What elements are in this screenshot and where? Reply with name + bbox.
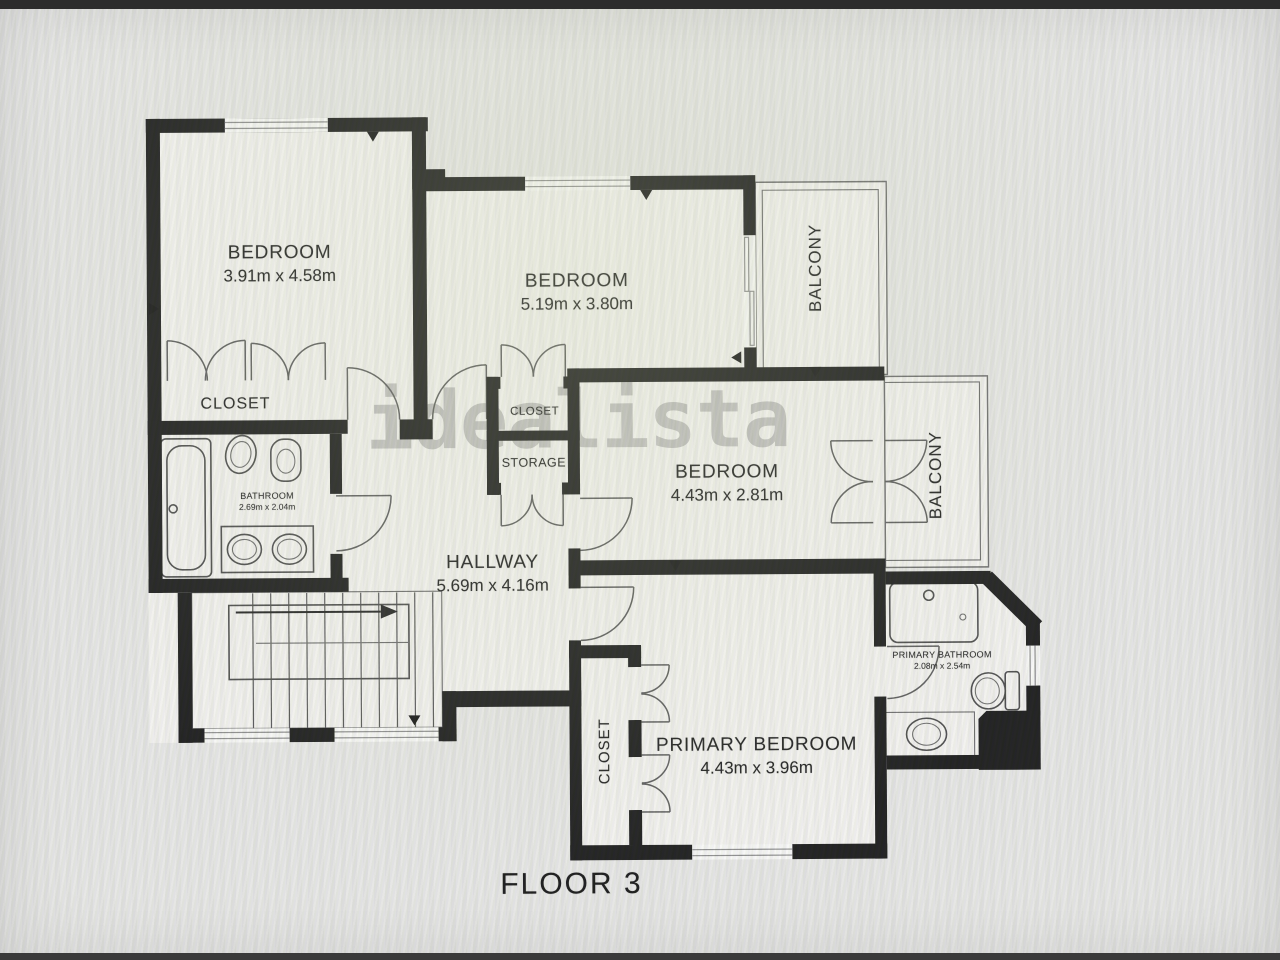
storage-label: STORAGE bbox=[502, 455, 566, 469]
photographed-floorplan-screen: idealista bbox=[0, 0, 1280, 960]
balcony-middle-label: BALCONY bbox=[926, 431, 947, 519]
primary-bathroom-label: PRIMARY BATHROOM 2.08m x 2.54m bbox=[892, 649, 991, 671]
sliding-door-balcony bbox=[744, 235, 757, 347]
closet-primary-label: CLOSET bbox=[596, 718, 613, 784]
photo-top-edge bbox=[0, 0, 1280, 9]
hallway-label: HALLWAY 5.69m x 4.16m bbox=[436, 552, 549, 597]
bathroom-label: BATHROOM 2.69m x 2.04m bbox=[239, 491, 295, 512]
balcony-top-label: BALCONY bbox=[805, 224, 826, 312]
bedroom-1-label: BEDROOM 3.91m x 4.58m bbox=[223, 242, 336, 287]
closet-bedroom1-label: CLOSET bbox=[200, 395, 270, 413]
closet-bedroom2-label: CLOSET bbox=[510, 405, 559, 417]
primary-bedroom-label: PRIMARY BEDROOM 4.43m x 3.96m bbox=[656, 734, 858, 779]
floorplan-drawing: idealista bbox=[0, 0, 1280, 960]
photo-bottom-edge bbox=[0, 953, 1280, 960]
floorplan: idealista bbox=[0, 0, 1280, 960]
bedroom-3-label: BEDROOM 4.43m x 2.81m bbox=[671, 461, 784, 506]
bedroom-2-label: BEDROOM 5.19m x 3.80m bbox=[520, 270, 633, 315]
floor-title: FLOOR 3 bbox=[500, 867, 643, 902]
